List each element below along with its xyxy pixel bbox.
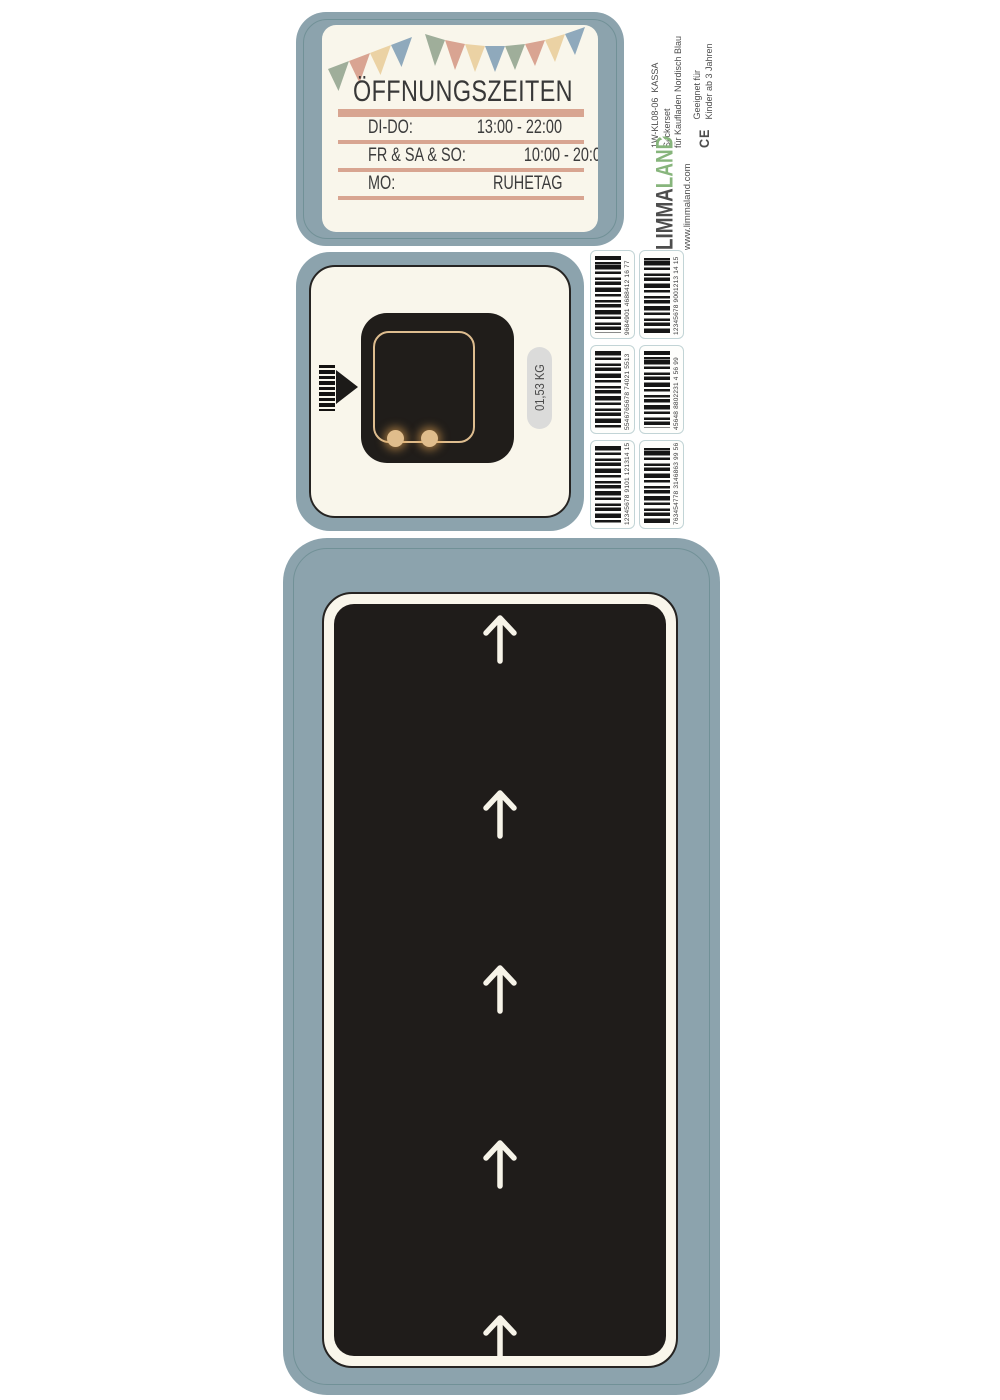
- sign-title: ÖFFNUNGSZEITEN: [322, 75, 598, 109]
- scale-panel: 01,53 KG: [309, 265, 571, 518]
- scale-sticker: 01,53 KG: [296, 252, 584, 531]
- hours-row-label: MO:: [368, 173, 395, 195]
- cart-wheel-icon: [387, 430, 404, 447]
- barcode-icon: [595, 256, 621, 333]
- opening-hours-sticker: ÖFFNUNGSZEITEN DI-DO: 13:00 - 22:00 FR &…: [296, 12, 624, 246]
- barcode-sticker: 12345678 9001213 14 15: [639, 250, 684, 339]
- up-arrow-icon: [480, 1312, 520, 1356]
- barcode-sticker: 45648 8802231 4 56 99: [639, 345, 684, 434]
- up-arrow-icon: [480, 962, 520, 1014]
- barcode-number: 763454778 3146863 99 56: [670, 444, 683, 525]
- hours-row-value: RUHETAG: [492, 173, 562, 195]
- opening-hours-panel: ÖFFNUNGSZEITEN DI-DO: 13:00 - 22:00 FR &…: [322, 25, 598, 232]
- barcode-icon: [644, 256, 670, 333]
- belt-frame: [322, 592, 678, 1368]
- barcode-number: 12345678 9101 121314 15: [621, 444, 634, 525]
- row-divider: [338, 196, 584, 200]
- row-divider: [338, 168, 584, 172]
- hours-row-value: 13:00 - 22:00: [477, 117, 562, 139]
- sheet-margin-info: LIMMALAND www.limmaland.com 1W-KL08-06 K…: [646, 22, 714, 250]
- hours-row-label: DI-DO:: [368, 117, 413, 139]
- barcode-number: 45648 8802231 4 56 99: [670, 349, 683, 430]
- age-note: Geeignet für Kinder ab 3 Jahren: [692, 43, 715, 119]
- hours-row: FR & SA & SO: 10:00 - 20:00: [338, 146, 584, 166]
- hours-row: MO: RUHETAG: [338, 174, 584, 194]
- weight-display-badge: 01,53 KG: [527, 347, 552, 429]
- brand-logo-limma: LIMMA: [650, 188, 678, 250]
- product-subtitle: für Kaufladen Nordisch Blau: [673, 22, 685, 148]
- cart-outline-icon: [373, 331, 475, 443]
- barcode-icon: [595, 446, 621, 523]
- ce-mark-icon: CE: [695, 129, 713, 148]
- brand-logo: LIMMALAND www.limmaland.com: [650, 150, 693, 250]
- barcode-icon: [644, 446, 670, 523]
- barcode-icon: [595, 351, 621, 428]
- barcode-sticker: 763454778 3146863 99 56: [639, 440, 684, 529]
- product-info: 1W-KL08-06 KASSA Stickerset für Kauflade…: [650, 22, 715, 148]
- up-arrow-icon: [480, 1137, 520, 1189]
- row-divider: [338, 140, 584, 144]
- cart-wheel-icon: [421, 430, 438, 447]
- up-arrow-icon: [480, 787, 520, 839]
- brand-logo-land: LAND: [650, 136, 678, 188]
- weight-value: 01,53 KG: [532, 365, 547, 412]
- conveyor-belt: [334, 604, 666, 1356]
- scale-screen: [361, 313, 514, 463]
- barcode-sticker: 12345678 9101 121314 15: [590, 440, 635, 529]
- barcode-sticker: 5546765678 74021 5513: [590, 345, 635, 434]
- scanner-arrow-icon: [336, 370, 358, 404]
- website-url: www.limmaland.com: [682, 150, 693, 250]
- conveyor-belt-sticker: [283, 538, 720, 1395]
- hours-row: DI-DO: 13:00 - 22:00: [338, 118, 584, 138]
- hours-row-value: 10:00 - 20:00: [524, 145, 598, 167]
- up-arrow-icon: [480, 612, 520, 664]
- barcode-number: 12345678 9001213 14 15: [670, 254, 683, 335]
- barcode-sticker: 9684901 4688412 16 77: [590, 250, 635, 339]
- hours-row-label: FR & SA & SO:: [368, 145, 466, 167]
- title-underline: [338, 109, 584, 117]
- barcode-number: 9684901 4688412 16 77: [621, 254, 634, 335]
- barcode-icon: [319, 365, 335, 411]
- barcode-number: 5546765678 74021 5513: [621, 349, 634, 430]
- barcode-icon: [644, 351, 670, 428]
